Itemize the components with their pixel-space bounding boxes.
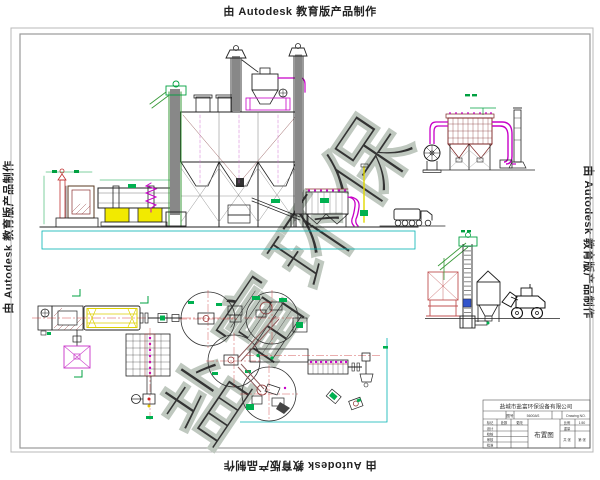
change-label: 更改	[516, 420, 523, 425]
rotary-drum-dryer	[98, 180, 172, 226]
plan-screen	[64, 346, 90, 368]
weight-label: 重量	[564, 426, 571, 431]
storage-silo-small	[477, 271, 500, 325]
feed-chute	[150, 92, 168, 108]
sign-row-label: 设计	[487, 426, 494, 431]
title-block: 盐城市盐富环保设备有限公司 图号 5600AS Drawing NO. 布置图 …	[483, 400, 590, 448]
brand-watermark: 盐富环保	[145, 91, 438, 462]
drum-base-yellow	[105, 208, 129, 222]
motor	[463, 299, 471, 307]
outlet-duct	[492, 122, 512, 164]
green-tag	[128, 184, 136, 188]
sign-row-label: 批准	[487, 442, 494, 447]
plan-misc-equipment	[326, 389, 363, 410]
drawing-no-en: Drawing NO.	[566, 414, 585, 418]
drawing-title: 布置图	[534, 430, 554, 439]
sheet-total: 共 张	[563, 437, 571, 442]
wheel-loader	[502, 284, 545, 319]
sign-row-label: 校核	[487, 431, 494, 436]
scale-label: 比例	[564, 420, 571, 425]
cad-drawing-sheet: 盐富环保	[0, 0, 600, 480]
qty-label: 处数	[501, 420, 508, 425]
company-name: 盐城市盐富环保设备有限公司	[500, 403, 573, 411]
plan-burner-fan	[38, 306, 52, 335]
loading-detail-view	[425, 230, 560, 328]
bucket-elevator-4	[459, 233, 487, 329]
scale-value: 1:50	[579, 421, 586, 425]
feed-hopper	[426, 272, 460, 316]
drawing-no: 5600AS	[527, 414, 540, 418]
furnace-burner	[44, 169, 98, 227]
sign-row-label: 标记	[487, 420, 494, 425]
dust-collector-detail	[423, 94, 535, 172]
bucket-elevator-2	[226, 46, 258, 113]
drawing-no-label: 图号	[506, 413, 514, 418]
sheet-index: 第 张	[578, 437, 586, 442]
sign-row-label: 审核	[487, 437, 494, 442]
